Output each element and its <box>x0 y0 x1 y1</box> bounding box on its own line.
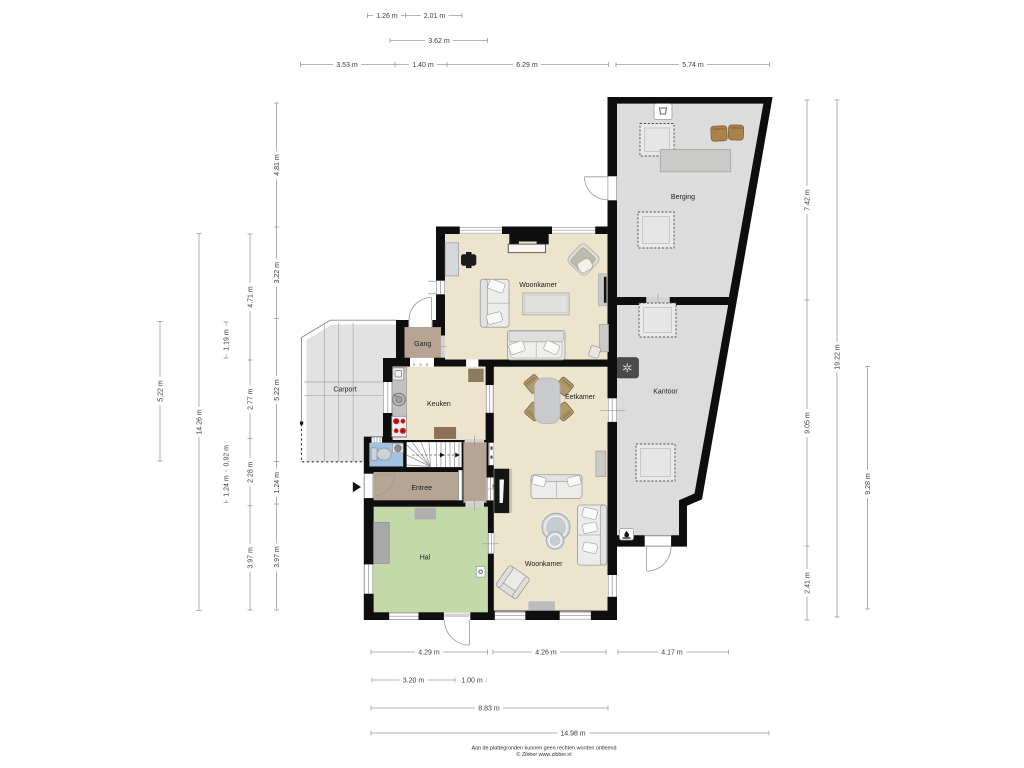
svg-text:Keuken: Keuken <box>427 401 451 408</box>
svg-text:4.17 m: 4.17 m <box>661 650 683 657</box>
svg-text:Carport: Carport <box>333 387 356 394</box>
svg-text:Hal: Hal <box>420 555 431 562</box>
svg-text:Berging: Berging <box>671 194 695 201</box>
svg-text:9.05 m: 9.05 m <box>804 412 811 434</box>
svg-text:3.97 m: 3.97 m <box>247 547 254 569</box>
svg-text:K: K <box>492 485 496 491</box>
svg-text:9.28 m: 9.28 m <box>865 473 872 495</box>
svg-text:3.20 m: 3.20 m <box>403 678 425 685</box>
svg-text:4.81 m: 4.81 m <box>274 154 281 176</box>
svg-text:19.22 m: 19.22 m <box>834 344 841 369</box>
svg-text:8.83 m: 8.83 m <box>478 706 500 713</box>
svg-text:14.98 m: 14.98 m <box>560 731 585 738</box>
svg-text:0.92 m: 0.92 m <box>223 445 230 467</box>
svg-text:6.29 m: 6.29 m <box>516 62 538 69</box>
svg-text:4.26 m: 4.26 m <box>535 650 557 657</box>
svg-text:Kantoor: Kantoor <box>653 389 678 396</box>
svg-text:3.22 m: 3.22 m <box>274 262 281 284</box>
svg-text:2.01 m: 2.01 m <box>424 13 446 20</box>
svg-text:4.29 m: 4.29 m <box>418 650 440 657</box>
svg-text:5.22 m: 5.22 m <box>157 380 164 402</box>
svg-text:1.26 m: 1.26 m <box>376 13 398 20</box>
svg-text:14.26 m: 14.26 m <box>196 409 203 434</box>
svg-text:Woonkamer: Woonkamer <box>519 282 557 289</box>
svg-text:1.24 m: 1.24 m <box>274 472 281 494</box>
svg-text:1.24 m: 1.24 m <box>223 475 230 497</box>
svg-text:2.41 m: 2.41 m <box>804 572 811 594</box>
svg-text:2.77 m: 2.77 m <box>247 388 254 410</box>
svg-text:Entree: Entree <box>411 485 432 492</box>
svg-text:1.40 m: 1.40 m <box>412 62 434 69</box>
svg-text:Woonkamer: Woonkamer <box>525 561 563 568</box>
svg-text:3.62 m: 3.62 m <box>428 38 450 45</box>
svg-text:5.74 m: 5.74 m <box>682 62 704 69</box>
svg-text:3.53 m: 3.53 m <box>336 62 358 69</box>
svg-text:1.00 m: 1.00 m <box>461 678 483 685</box>
svg-text:3.97 m: 3.97 m <box>274 546 281 568</box>
svg-text:2.28 m: 2.28 m <box>247 461 254 483</box>
svg-text:Aan de plattegronden kunnen ge: Aan de plattegronden kunnen geen rechten… <box>471 746 616 752</box>
svg-text:4.71 m: 4.71 m <box>247 286 254 308</box>
svg-text:© Zibber www.zibber.nl: © Zibber www.zibber.nl <box>516 751 571 758</box>
svg-text:1.19 m: 1.19 m <box>223 329 230 351</box>
svg-text:5.22 m: 5.22 m <box>274 379 281 401</box>
svg-text:Eetkamer: Eetkamer <box>565 394 596 401</box>
svg-text:Gang: Gang <box>414 341 431 348</box>
svg-text:7.42 m: 7.42 m <box>804 189 811 211</box>
